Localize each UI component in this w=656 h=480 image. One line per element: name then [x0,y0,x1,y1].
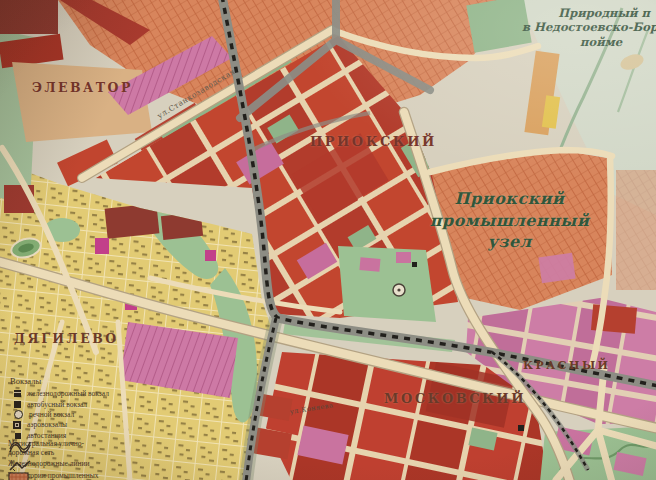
industrial-territory-icon [8,472,30,480]
legend-row-river-port: речной вокзал [14,410,74,419]
airport-icon [13,421,21,429]
legend-row-bus-terminal: автобусный вокзал [14,400,87,409]
bus-terminal-icon [14,401,21,408]
bus-station-marker [518,425,524,431]
legend-row-airport: аэровокзалы [13,420,67,429]
map-canvas [0,0,656,480]
city-plan-map: Природный п в Недостоевско-Бор пойме ЭЛЕ… [0,0,656,480]
river-port-icon [14,410,23,419]
bus-stop-icon [15,433,21,439]
railway-station-icon [14,390,21,397]
legend-row-railway-station: железнодорожный вокзал [14,389,109,398]
legend-stations-header: Вокзалы [10,376,41,386]
road-network-icon [8,440,32,456]
legend-row-railway-lines: Железнодорожные линии [8,459,89,468]
legend-row-road-network: Магистральная улично- дорожная сеть [8,440,84,457]
legend-row-industrial-territory: Территории промышленных узлов [8,472,99,480]
station-marker [412,262,417,267]
